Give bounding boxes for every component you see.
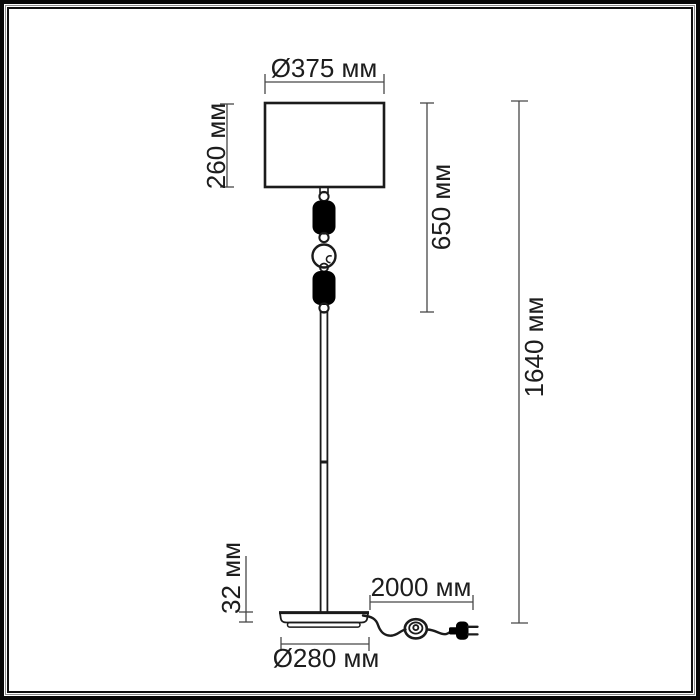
lower-capsule [313,271,336,305]
lamp-technical-drawing: Ø375 мм 260 мм 650 мм 1640 мм 32 мм 2000… [0,0,700,700]
lamp-base [280,613,368,623]
dimension-labels: Ø375 мм 260 мм 650 мм 1640 мм 32 мм 2000… [201,53,549,673]
upper-capsule [313,201,336,235]
inline-switch [405,619,427,638]
diagram-canvas: Ø375 мм 260 мм 650 мм 1640 мм 32 мм 2000… [0,0,700,700]
label-total-height: 1640 мм [519,297,549,398]
label-cord-length: 2000 мм [371,572,472,602]
lampshade [265,103,384,187]
base-plate [288,623,361,628]
power-cord-right [428,630,452,635]
label-shade-diameter: Ø375 мм [271,53,378,83]
label-upper-section-height: 650 мм [426,164,456,250]
label-shade-height: 260 мм [201,103,231,189]
label-base-diameter: Ø280 мм [273,643,380,673]
power-plug [449,622,478,640]
label-base-height: 32 мм [216,542,246,614]
sphere-highlight [326,256,331,263]
power-cord-left [363,616,406,636]
plug-head [456,622,469,640]
